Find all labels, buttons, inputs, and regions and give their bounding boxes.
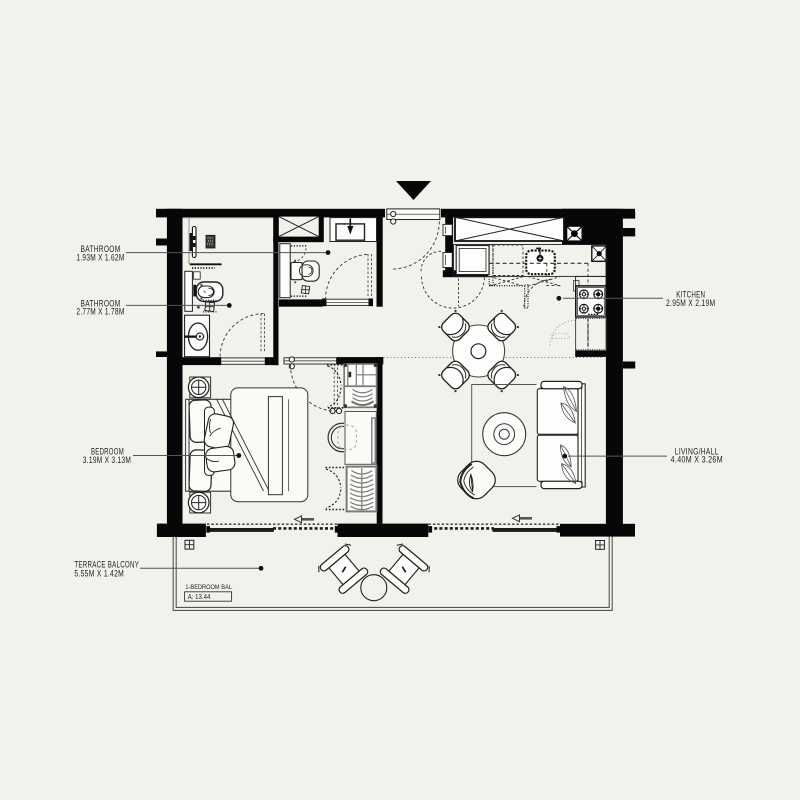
svg-text:2.95M X 2.19M: 2.95M X 2.19M <box>666 298 715 308</box>
svg-text:2.77M X 1.78M: 2.77M X 1.78M <box>76 306 124 316</box>
svg-text:3.19M X 3.13M: 3.19M X 3.13M <box>83 455 131 465</box>
svg-text:4.40M X 3.26M: 4.40M X 3.26M <box>671 455 723 465</box>
svg-text:A: 13.44: A: 13.44 <box>188 592 211 601</box>
svg-text:1.93M X 1.62M: 1.93M X 1.62M <box>76 252 124 262</box>
svg-text:5.55M X 1.42M: 5.55M X 1.42M <box>74 569 124 579</box>
svg-text:1-BEDROOM BAL: 1-BEDROOM BAL <box>185 584 232 591</box>
